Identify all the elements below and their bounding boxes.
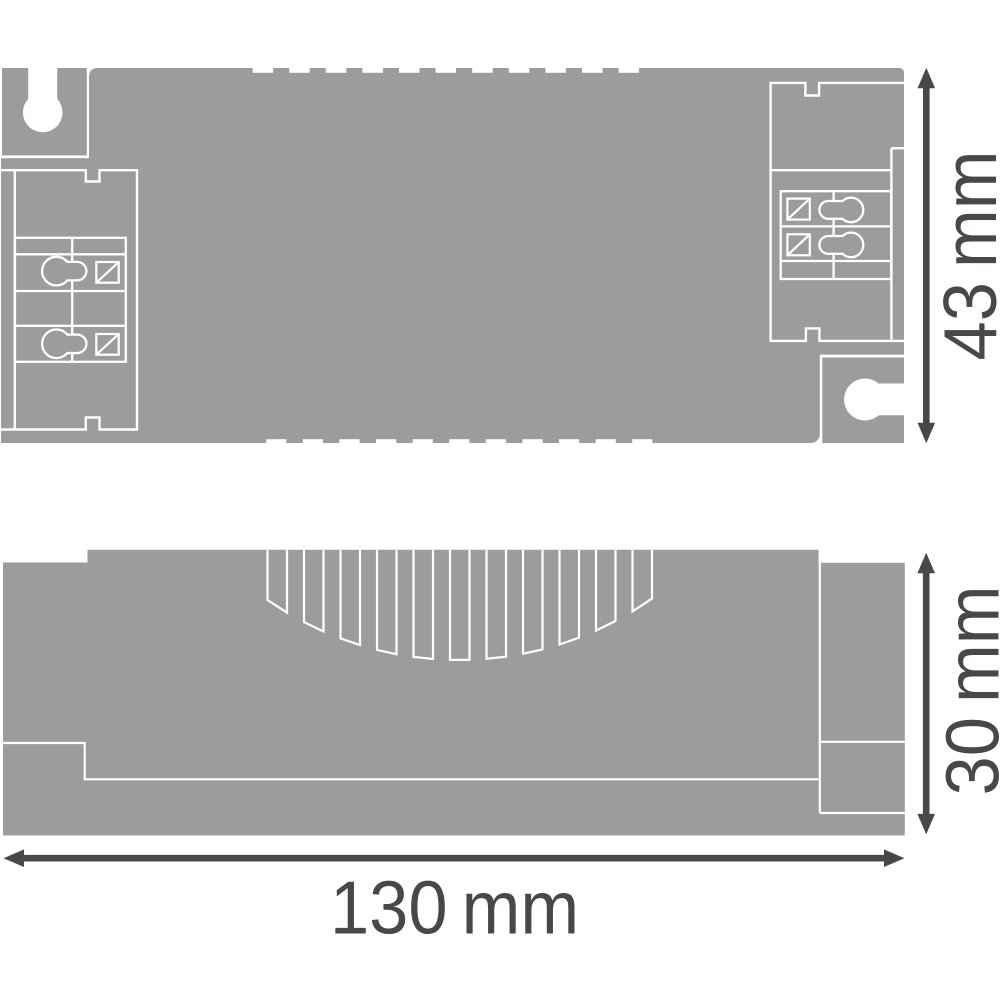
svg-text:30 mm: 30 mm bbox=[932, 586, 1000, 796]
svg-text:43 mm: 43 mm bbox=[929, 151, 1000, 361]
svg-text:130 mm: 130 mm bbox=[330, 867, 579, 950]
